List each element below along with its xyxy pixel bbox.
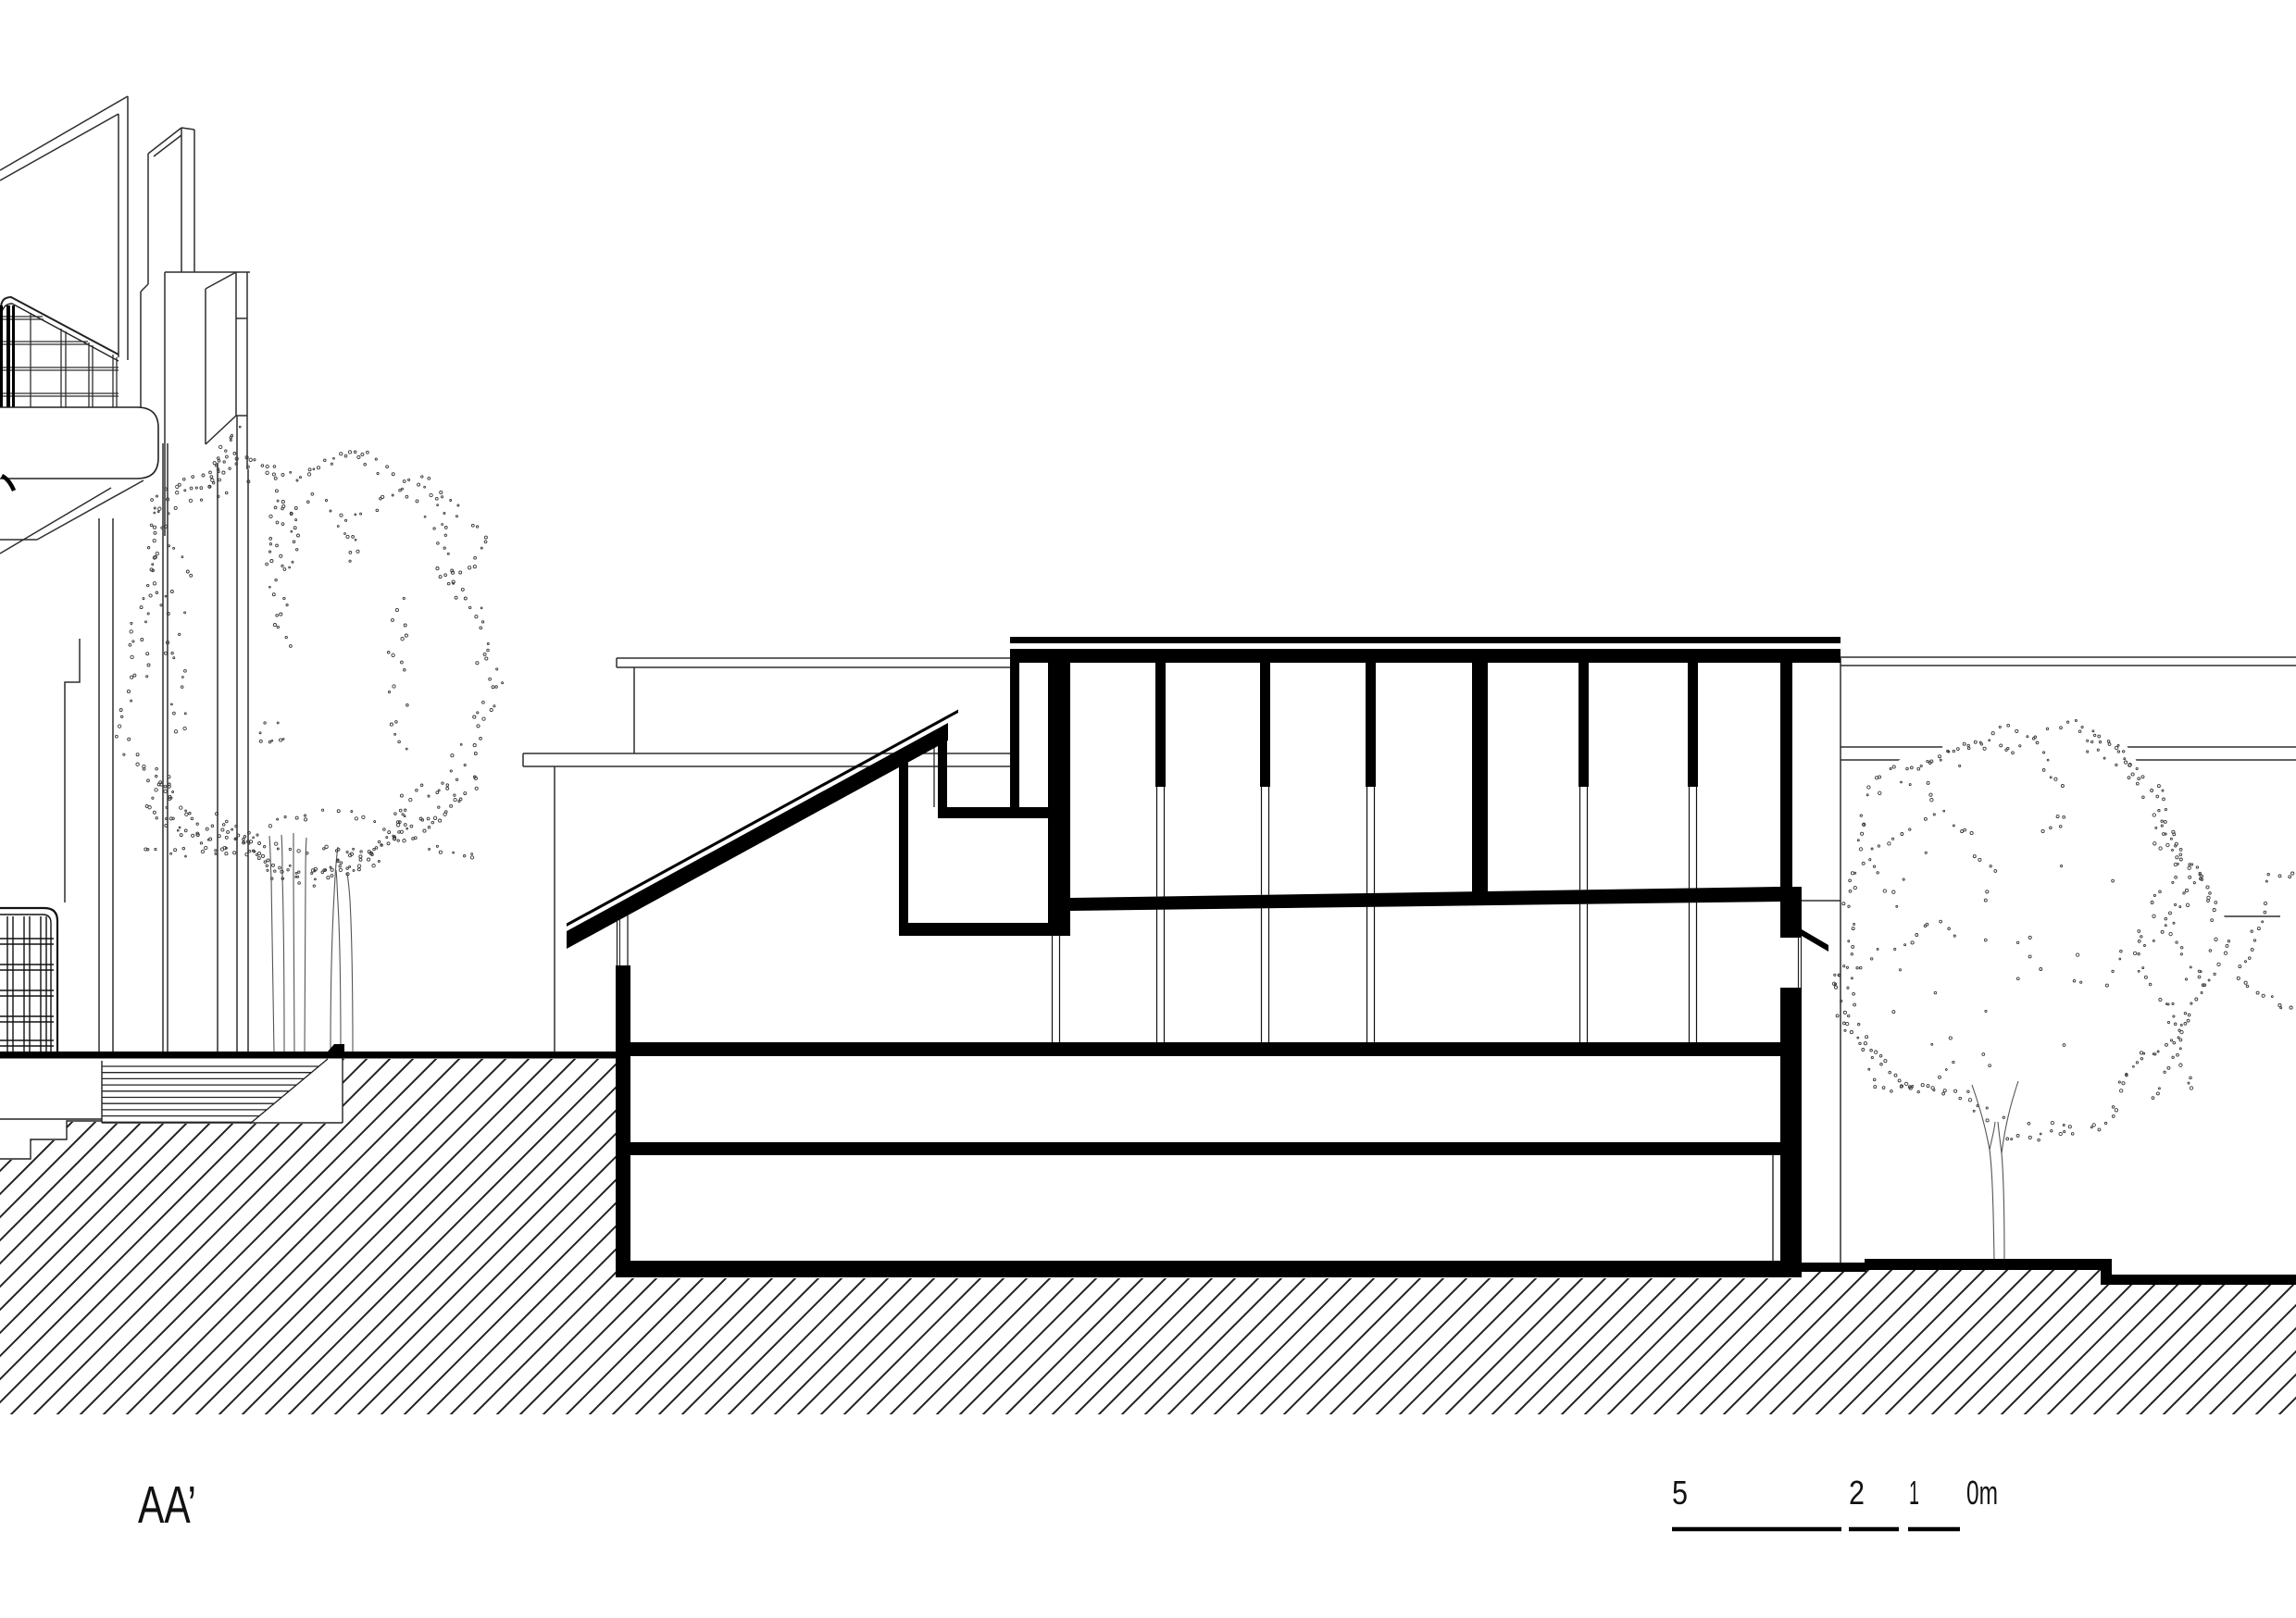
svg-text:1: 1 [1909,1474,1919,1512]
svg-text:5: 5 [1672,1474,1688,1512]
svg-text:0m: 0m [1966,1474,1998,1512]
svg-text:AA’: AA’ [138,1475,196,1535]
svg-text:2: 2 [1849,1474,1865,1512]
